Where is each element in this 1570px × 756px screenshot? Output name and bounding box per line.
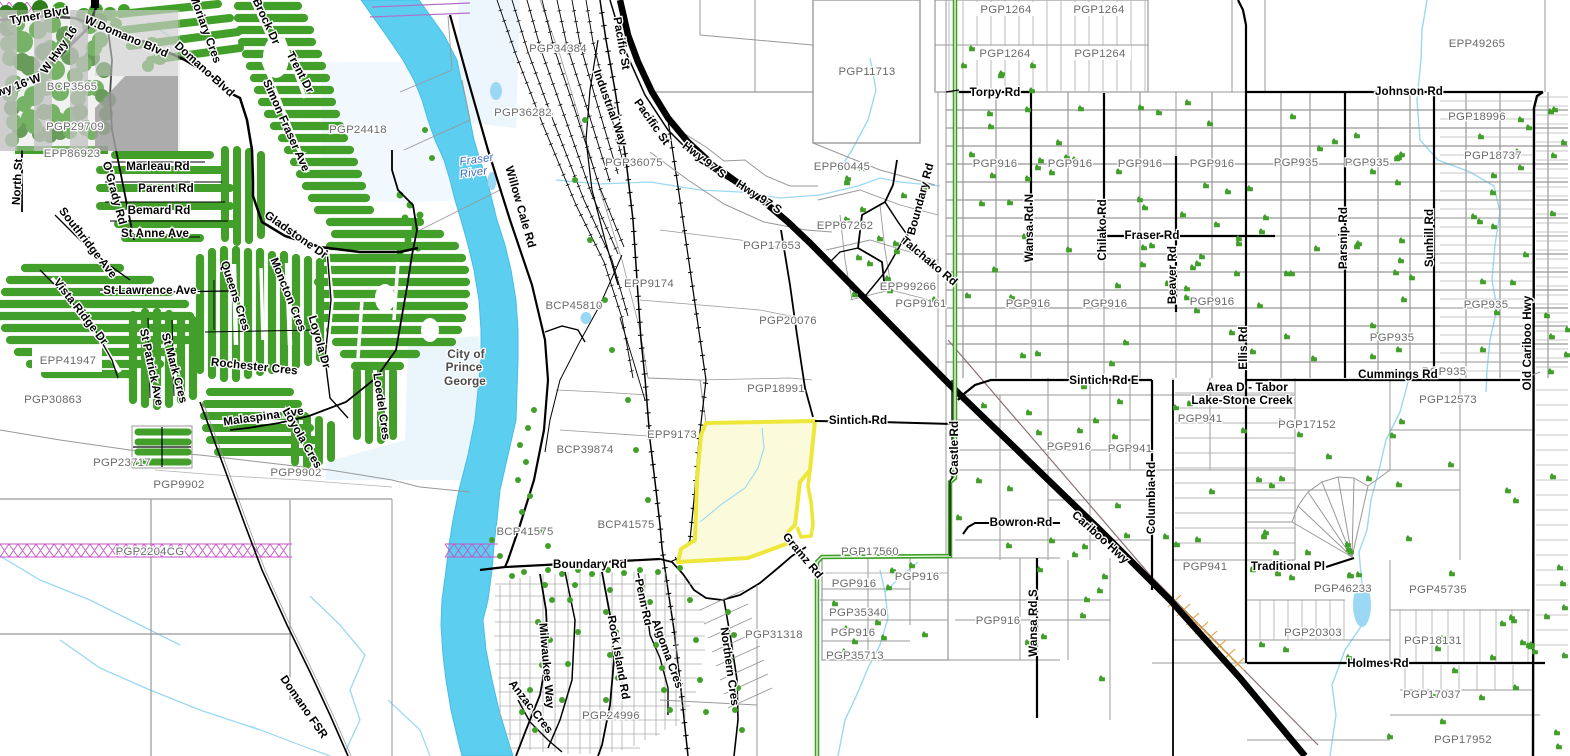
- svg-text:PGP935: PGP935: [1464, 299, 1509, 311]
- svg-text:BCP41575: BCP41575: [496, 526, 553, 538]
- svg-text:North St: North St: [10, 158, 25, 205]
- svg-text:PGP1264: PGP1264: [980, 4, 1031, 16]
- svg-text:PGP36075: PGP36075: [605, 157, 663, 169]
- svg-text:PGP916: PGP916: [1006, 298, 1051, 310]
- svg-text:EPP67262: EPP67262: [817, 220, 873, 232]
- svg-text:Wansa Rd S: Wansa Rd S: [1027, 589, 1040, 657]
- svg-text:PGP916: PGP916: [832, 578, 877, 590]
- svg-text:PGP1264: PGP1264: [979, 48, 1030, 60]
- svg-text:Castle Rd: Castle Rd: [948, 421, 961, 475]
- svg-text:EPP9173: EPP9173: [647, 429, 697, 441]
- svg-text:PGP941: PGP941: [1178, 413, 1223, 425]
- svg-text:PGP916: PGP916: [1083, 298, 1128, 310]
- svg-text:Marleau Rd: Marleau Rd: [126, 160, 190, 173]
- svg-text:Parent Rd: Parent Rd: [138, 182, 194, 195]
- svg-text:PGP916: PGP916: [1048, 158, 1093, 170]
- svg-text:Columbia Rd: Columbia Rd: [1145, 462, 1158, 535]
- svg-text:PGP916: PGP916: [1190, 296, 1235, 308]
- svg-text:PGP24418: PGP24418: [329, 124, 387, 136]
- svg-text:PGP941: PGP941: [1108, 443, 1153, 455]
- svg-text:Fraser Rd: Fraser Rd: [1124, 229, 1179, 242]
- svg-text:Sintich Rd: Sintich Rd: [829, 414, 887, 427]
- svg-text:PGP45735: PGP45735: [1409, 584, 1467, 596]
- svg-text:PGP11713: PGP11713: [839, 66, 896, 78]
- svg-text:Ellis Rd: Ellis Rd: [1237, 326, 1250, 369]
- svg-text:PGP916: PGP916: [895, 571, 940, 583]
- svg-text:PGP935: PGP935: [1370, 332, 1415, 344]
- svg-text:PGP17952: PGP17952: [1434, 734, 1492, 746]
- svg-text:PGP31318: PGP31318: [745, 629, 803, 641]
- svg-text:PGP916: PGP916: [831, 627, 876, 639]
- svg-text:City of: City of: [447, 347, 484, 361]
- svg-text:PGP935: PGP935: [1274, 157, 1319, 169]
- svg-text:Cummings Rd: Cummings Rd: [1358, 368, 1438, 381]
- svg-text:PGP941: PGP941: [1183, 561, 1228, 573]
- svg-text:PGP18737: PGP18737: [1464, 150, 1522, 162]
- svg-text:PGP9902: PGP9902: [153, 479, 204, 491]
- svg-text:Chilako Rd: Chilako Rd: [1096, 199, 1109, 261]
- svg-text:PGP20303: PGP20303: [1284, 627, 1342, 639]
- svg-text:St Lawrence Ave: St Lawrence Ave: [103, 284, 197, 297]
- svg-text:EPP9174: EPP9174: [624, 278, 674, 290]
- svg-text:BCP45810: BCP45810: [545, 300, 602, 312]
- svg-text:PGP17653: PGP17653: [743, 240, 801, 252]
- svg-text:PGP20076: PGP20076: [759, 315, 817, 327]
- svg-text:PGP17560: PGP17560: [841, 546, 899, 558]
- svg-text:PGP46233: PGP46233: [1314, 583, 1372, 595]
- svg-text:PGP18131: PGP18131: [1404, 635, 1462, 647]
- svg-text:PGP36282: PGP36282: [494, 107, 552, 119]
- svg-text:Old Cariboo Hwy: Old Cariboo Hwy: [1521, 295, 1534, 390]
- svg-text:PGP916: PGP916: [1118, 158, 1163, 170]
- svg-text:PGP35340: PGP35340: [829, 607, 887, 619]
- svg-text:PGP1264: PGP1264: [1074, 48, 1125, 60]
- svg-text:PGP30863: PGP30863: [24, 394, 82, 406]
- svg-text:BCP39874: BCP39874: [556, 444, 613, 456]
- svg-text:PGP916: PGP916: [973, 158, 1018, 170]
- svg-text:Wansa Rd N: Wansa Rd N: [1023, 194, 1036, 262]
- svg-text:EPP86923: EPP86923: [44, 148, 100, 160]
- svg-text:PGP916: PGP916: [976, 615, 1021, 627]
- svg-text:EPP60445: EPP60445: [814, 161, 870, 173]
- svg-text:EPP41947: EPP41947: [40, 355, 96, 367]
- svg-text:EPP99266: EPP99266: [880, 281, 936, 293]
- svg-text:PGP916: PGP916: [1190, 158, 1235, 170]
- svg-text:PGP23717: PGP23717: [93, 457, 151, 469]
- svg-text:Traditional Pl: Traditional Pl: [1251, 560, 1325, 573]
- svg-text:PGP1264: PGP1264: [1073, 4, 1124, 16]
- svg-text:Boundary Rd: Boundary Rd: [553, 558, 627, 571]
- svg-text:EPP49265: EPP49265: [1449, 38, 1505, 50]
- svg-text:St Anne Ave: St Anne Ave: [121, 227, 190, 240]
- svg-text:PGP29709: PGP29709: [46, 121, 104, 133]
- svg-text:Holmes Rd: Holmes Rd: [1347, 657, 1408, 670]
- svg-text:Torpy Rd: Torpy Rd: [970, 86, 1021, 99]
- svg-text:BCP41575: BCP41575: [597, 519, 654, 531]
- svg-text:Parsnip Rd: Parsnip Rd: [1337, 207, 1350, 269]
- svg-text:PGP24996: PGP24996: [582, 710, 640, 722]
- svg-text:Johnson Rd: Johnson Rd: [1375, 85, 1443, 98]
- svg-text:PGP34384: PGP34384: [529, 43, 587, 55]
- svg-text:PGP17037: PGP17037: [1403, 689, 1461, 701]
- svg-text:Area D - Tabor: Area D - Tabor: [1206, 380, 1288, 394]
- svg-text:Lake-Stone Creek: Lake-Stone Creek: [1191, 393, 1293, 407]
- svg-text:Bowron Rd: Bowron Rd: [990, 516, 1053, 529]
- svg-text:BCP3565: BCP3565: [47, 81, 98, 93]
- svg-text:PGP17152: PGP17152: [1278, 419, 1336, 431]
- svg-text:Bemard Rd: Bemard Rd: [128, 204, 191, 217]
- svg-text:Prince: Prince: [446, 360, 483, 374]
- svg-text:PGP935: PGP935: [1345, 157, 1390, 169]
- svg-text:Sunhill Rd: Sunhill Rd: [1423, 209, 1436, 267]
- svg-text:PGP916: PGP916: [1047, 441, 1092, 453]
- svg-text:Sintich Rd E: Sintich Rd E: [1069, 374, 1139, 387]
- svg-text:George: George: [444, 374, 486, 388]
- svg-text:PGP9161: PGP9161: [895, 298, 946, 310]
- svg-text:PGP2204CG: PGP2204CG: [116, 546, 185, 558]
- svg-text:Beaver Rd: Beaver Rd: [1166, 246, 1179, 304]
- svg-text:PGP35713: PGP35713: [826, 650, 884, 662]
- svg-text:PGP18996: PGP18996: [1448, 111, 1506, 123]
- svg-text:PGP12573: PGP12573: [1419, 394, 1477, 406]
- svg-text:PGP18991: PGP18991: [747, 383, 805, 395]
